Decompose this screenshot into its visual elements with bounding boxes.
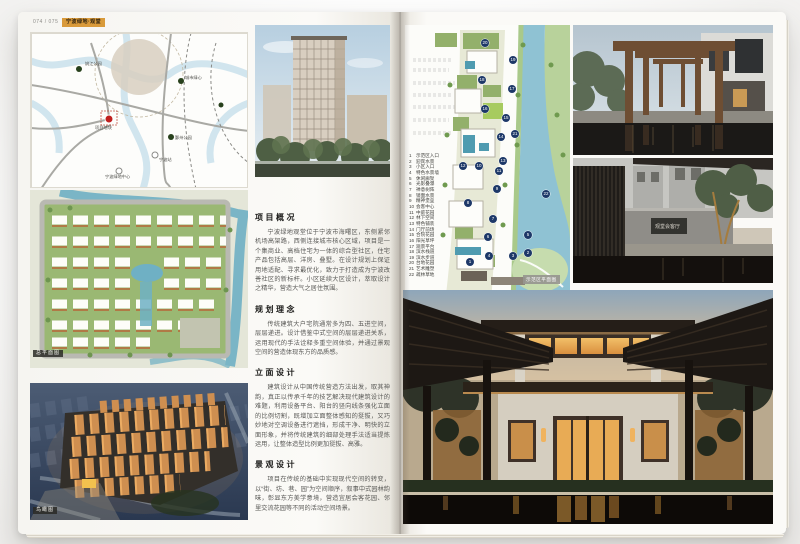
location-map: 姚江公园城市绿心鄞州公园项目地块宁波站宁波绿地中心 区位图 xyxy=(30,32,248,188)
demo-area-plan: 1示范区入口2迎宾水景3小区入口4特色水景墙5休闲廊架6光影叠瀑7禅意树阵8镜面… xyxy=(405,25,570,305)
plan-marker: 16 xyxy=(481,105,489,113)
courtyard-photo: 观堂会客厅 xyxy=(573,158,773,283)
master-plan: 总平面图 xyxy=(30,190,248,368)
plan-marker: 15 xyxy=(502,114,510,122)
building-photo xyxy=(255,25,390,177)
section-body: 建筑设计从中国传统营造方法出发，取其神韵，真正以传承千年的技艺解决现代建筑设计的… xyxy=(255,383,390,449)
section-title: 项目概况 xyxy=(255,212,390,223)
page-numbers: 074 / 075 xyxy=(33,19,58,25)
demo-plan-caption: 示范区平面图 xyxy=(523,275,560,284)
plan-marker: 13 xyxy=(499,157,507,165)
section-body: 宁波绿地观堂位于宁波市海曙区，东侧紧邻机场高架路，西侧连接城市核心区域，项目是一… xyxy=(255,228,390,294)
aerial-caption: 鸟瞰图 xyxy=(33,507,57,514)
section-body: 传统建筑大户宅院通常多为四、五进空间，层层递进。设计借鉴中式空间的层层递进关系，… xyxy=(255,320,390,358)
plan-marker: 20 xyxy=(481,39,489,47)
plan-marker: 10 xyxy=(475,162,483,170)
entrance-photo xyxy=(403,290,773,524)
plan-marker: 14 xyxy=(497,133,505,141)
map-label: 项目地块 xyxy=(95,125,112,131)
section-title: 景观设计 xyxy=(255,459,390,470)
map-label: 宁波绿地中心 xyxy=(105,174,130,180)
building-photo-graphic xyxy=(255,25,390,177)
aerial-rendering: 鸟瞰图 xyxy=(30,383,248,520)
plan-marker: 8 xyxy=(464,199,472,207)
page-stack-edge xyxy=(786,20,789,528)
plan-marker: 4 xyxy=(485,252,493,260)
plan-marker: 7 xyxy=(489,215,497,223)
master-plan-caption: 总平面图 xyxy=(33,350,63,357)
aerial-graphic xyxy=(30,383,248,520)
plan-marker: 19 xyxy=(509,56,517,64)
master-plan-graphic xyxy=(30,190,248,368)
pergola-photo xyxy=(573,25,773,155)
plan-marker: 18 xyxy=(478,76,486,84)
courtyard-plaque-text: 观堂会客厅 xyxy=(655,223,680,230)
plan-marker: 3 xyxy=(509,252,517,260)
courtyard-photo-graphic: 观堂会客厅 xyxy=(573,158,773,283)
plan-marker: 2 xyxy=(524,249,532,257)
article-text-column: 项目概况宁波绿地观堂位于宁波市海曙区，东侧紧邻机场高架路，西侧连接城市核心区域，… xyxy=(255,212,390,523)
entrance-photo-graphic xyxy=(403,290,773,524)
project-badge: 宁波绿地·观堂 xyxy=(62,18,105,27)
map-label: 鄞州公园 xyxy=(175,135,192,141)
page-stack-bottom xyxy=(26,534,784,538)
plan-marker: 21 xyxy=(511,130,519,138)
plan-marker: 6 xyxy=(484,233,492,241)
section-body: 项目在传统的基础中实现现代空间的转变，以“街、坊、巷、园”为空间顺序，叙事中式园… xyxy=(255,475,390,513)
plan-marker: 17 xyxy=(508,85,516,93)
plan-marker: 9 xyxy=(493,185,501,193)
location-map-graphic xyxy=(31,33,248,188)
photo-backdrop: 074 / 075 宁波绿地·观堂 xyxy=(0,0,800,544)
plan-marker: 12 xyxy=(459,162,467,170)
pergola-photo-graphic xyxy=(573,25,773,155)
section-title: 规划理念 xyxy=(255,304,390,315)
plan-legend: 1示范区入口2迎宾水景3小区入口4特色水景墙5休闲廊架6光影叠瀑7禅意树阵8镜面… xyxy=(409,153,461,277)
book-spread: 074 / 075 宁波绿地·观堂 xyxy=(18,12,786,534)
section-title: 立面设计 xyxy=(255,367,390,378)
map-label: 姚江公园 xyxy=(85,61,102,67)
plan-marker: 1 xyxy=(466,258,474,266)
map-label: 城市绿心 xyxy=(185,75,202,81)
plan-marker: 5 xyxy=(524,231,532,239)
plan-marker: 22 xyxy=(542,190,550,198)
legend-item: 22疏林草地 xyxy=(409,272,461,278)
plan-marker: 11 xyxy=(495,167,503,175)
map-label: 宁波站 xyxy=(159,157,172,163)
